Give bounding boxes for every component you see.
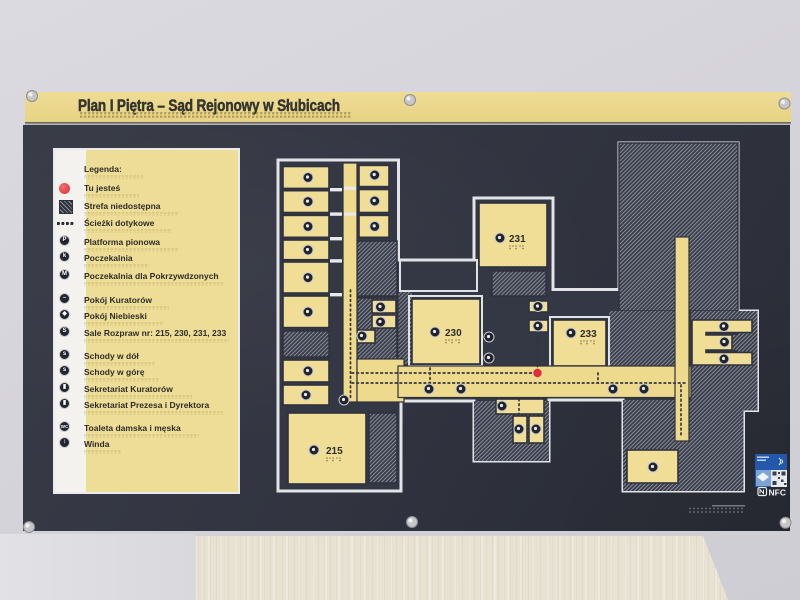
- svg-text:NFC: NFC: [769, 488, 786, 498]
- svg-text:215: 215: [326, 446, 343, 457]
- svg-text:233: 233: [580, 329, 597, 340]
- svg-text:230: 230: [445, 328, 462, 339]
- svg-text:231: 231: [509, 234, 526, 245]
